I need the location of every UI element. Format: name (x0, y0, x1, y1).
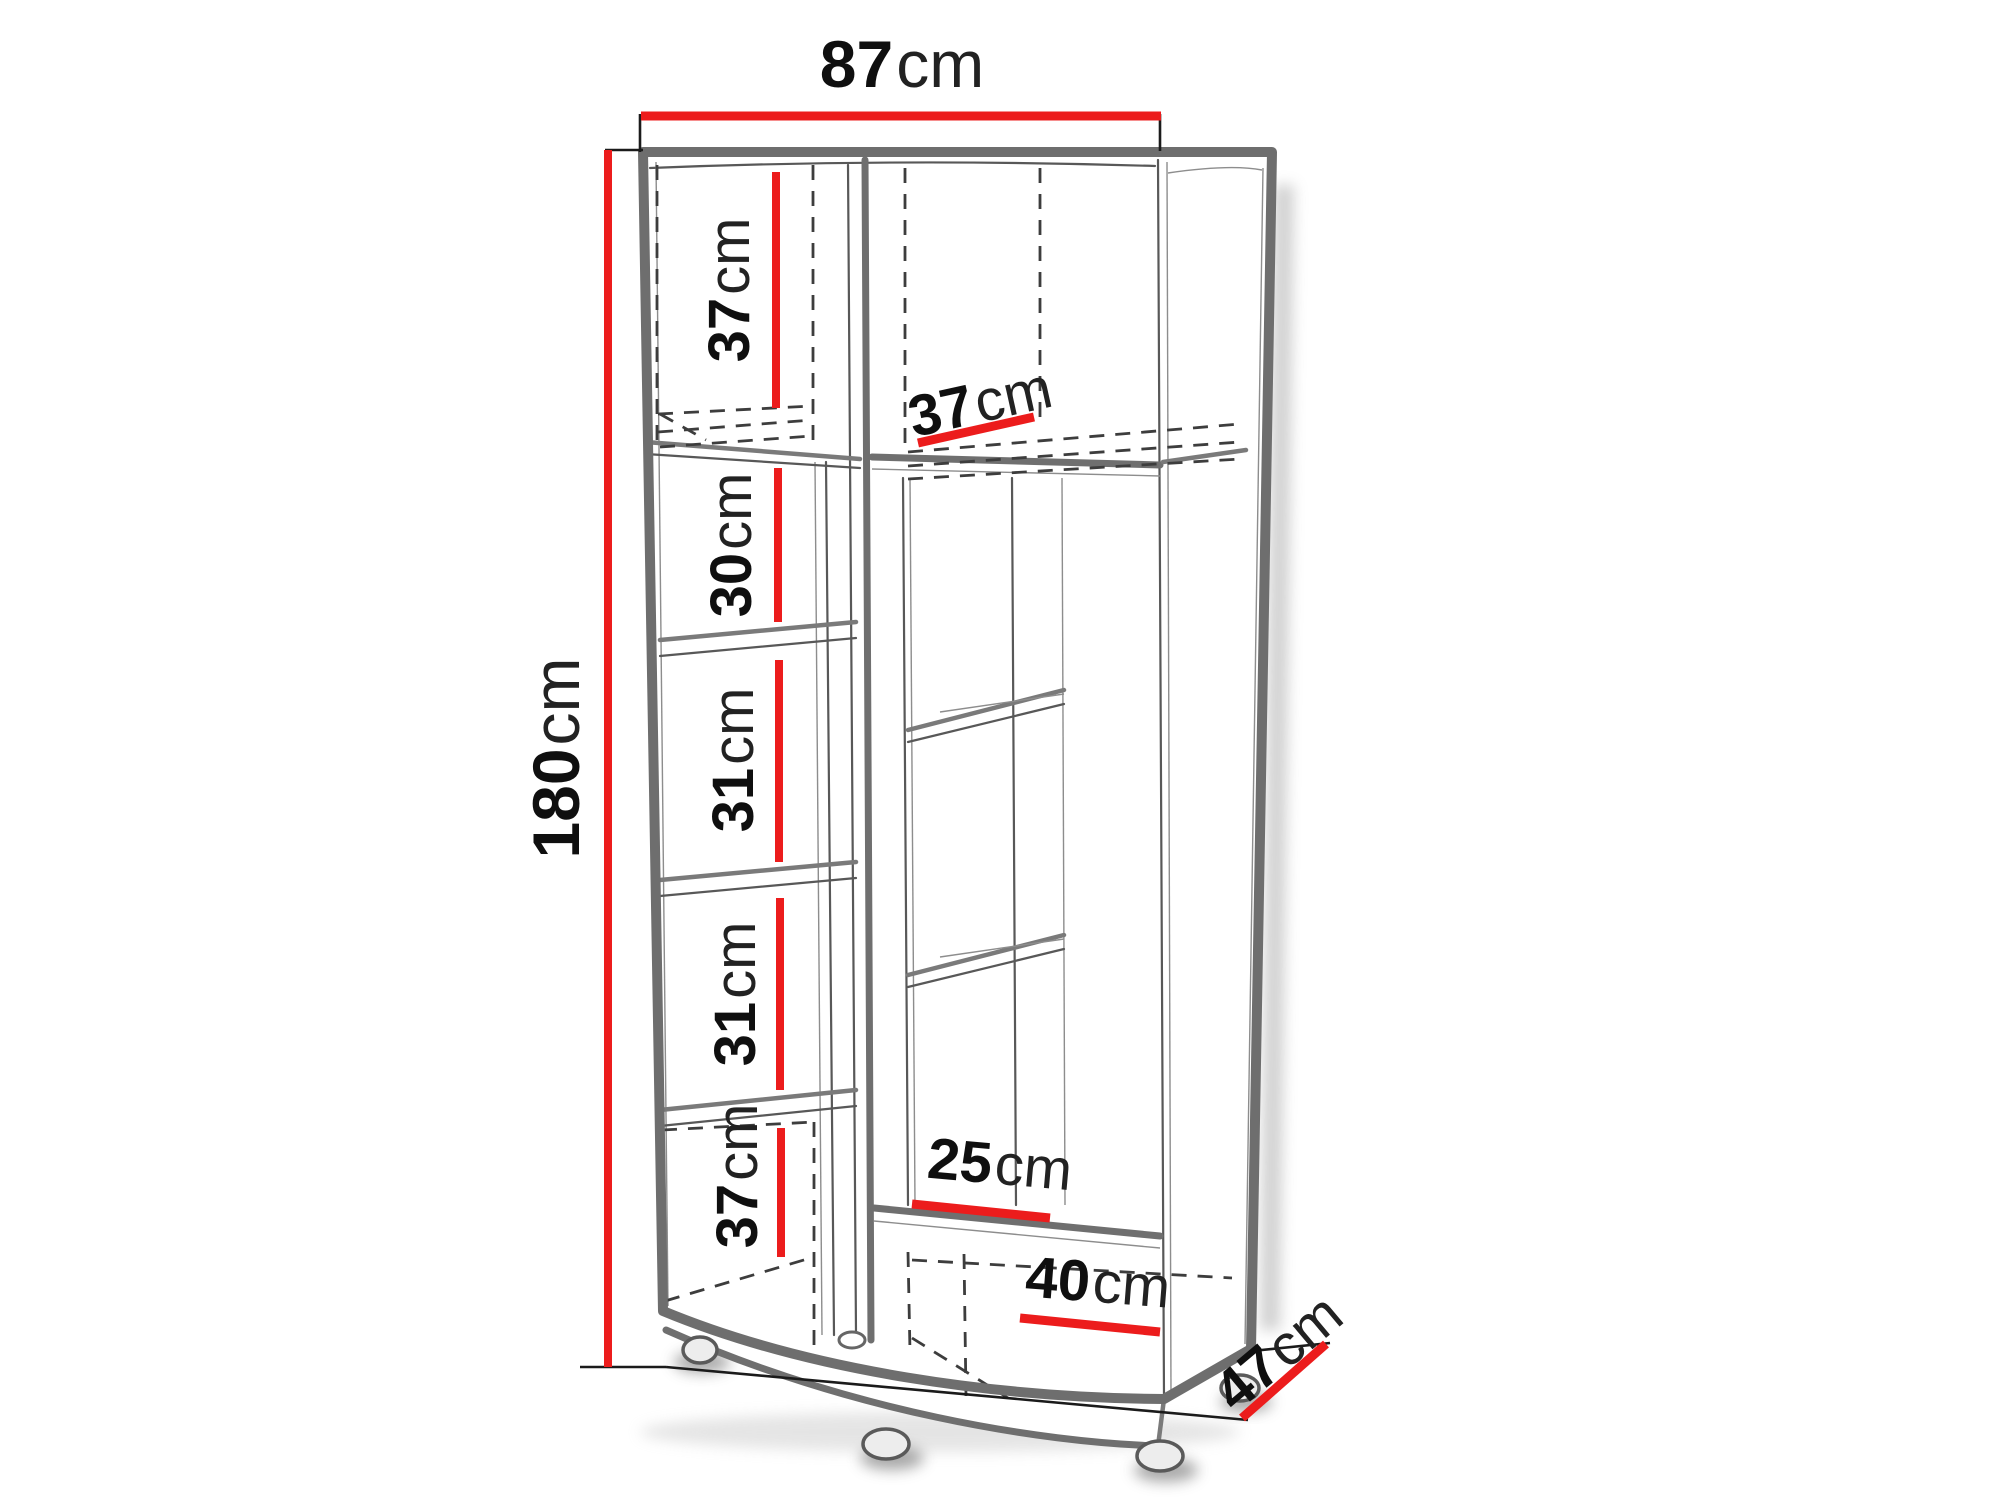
left-bottom-compartment-label: 37cm (705, 1104, 770, 1249)
width-label: 87cm (820, 27, 984, 101)
left-row3-label: 31cm (701, 688, 766, 833)
height-label: 180cm (519, 657, 593, 858)
right-shelf-label: 25cm (925, 1125, 1075, 1202)
right-bottom-label: 40cm (1023, 1244, 1172, 1320)
front-foot (1137, 1441, 1183, 1471)
front-foot (683, 1337, 717, 1363)
left-row2-label: 30cm (699, 473, 764, 618)
left-top-compartment-label: 37cm (697, 218, 762, 363)
left-row4-label: 31cm (703, 922, 768, 1067)
front-foot (863, 1429, 909, 1459)
wardrobe-dimension-diagram: 87cm 180cm 37cm 30cm 31cm 31cm 37cm 37cm… (0, 0, 2000, 1499)
centre-foot (839, 1332, 865, 1348)
diagram-canvas: 87cm 180cm 37cm 30cm 31cm 31cm 37cm 37cm… (0, 0, 2000, 1499)
